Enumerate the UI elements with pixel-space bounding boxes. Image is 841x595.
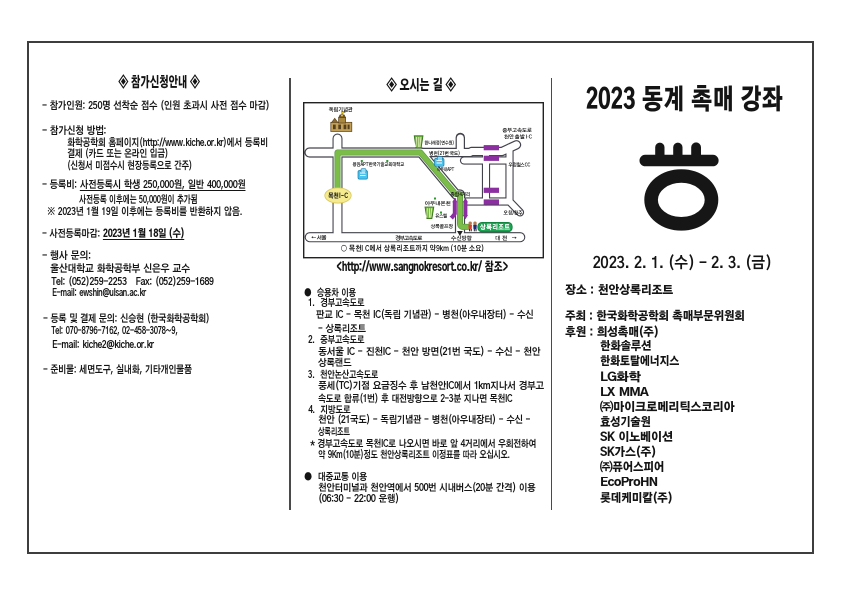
svg-text:한나래정(연수원): 한나래정(연수원) <box>425 139 455 145</box>
svg-text:중부고속도로: 중부고속도로 <box>502 127 532 134</box>
svg-text:종합4거리: 종합4거리 <box>450 191 470 197</box>
svg-text:대전 →: 대전 → <box>495 235 517 242</box>
svg-text:목천I-C: 목천I-C <box>328 192 349 200</box>
svg-text:상록골프장: 상록골프장 <box>431 223 454 229</box>
svg-text:경부고속도로: 경부고속도로 <box>395 235 422 242</box>
svg-text:← 서울: ← 서울 <box>311 235 327 242</box>
svg-text:상록리조트: 상록리조트 <box>479 223 510 231</box>
svg-text:수신방향: 수신방향 <box>451 235 472 242</box>
svg-text:용암APT 한국기술교육대학교: 용암APT 한국기술교육대학교 <box>353 161 405 167</box>
svg-text:독립기념관: 독립기념관 <box>329 106 353 113</box>
svg-text:오창/청주: 오창/청주 <box>504 210 523 217</box>
svg-text:아우내온천: 아우내온천 <box>425 200 452 206</box>
svg-text:아우내APT: 아우내APT <box>437 166 454 172</box>
svg-text:○ 목천I C에서 상록리조트까지 약9km (10분 소요: ○ 목천I C에서 상록리조트까지 약9km (10분 소요) <box>341 243 485 253</box>
svg-text:우정힐스CC: 우정힐스CC <box>509 162 531 168</box>
svg-text:병천(21번 국도): 병천(21번 국도) <box>429 150 460 156</box>
svg-text:천안 출발 I·C: 천안 출발 I·C <box>504 134 533 141</box>
